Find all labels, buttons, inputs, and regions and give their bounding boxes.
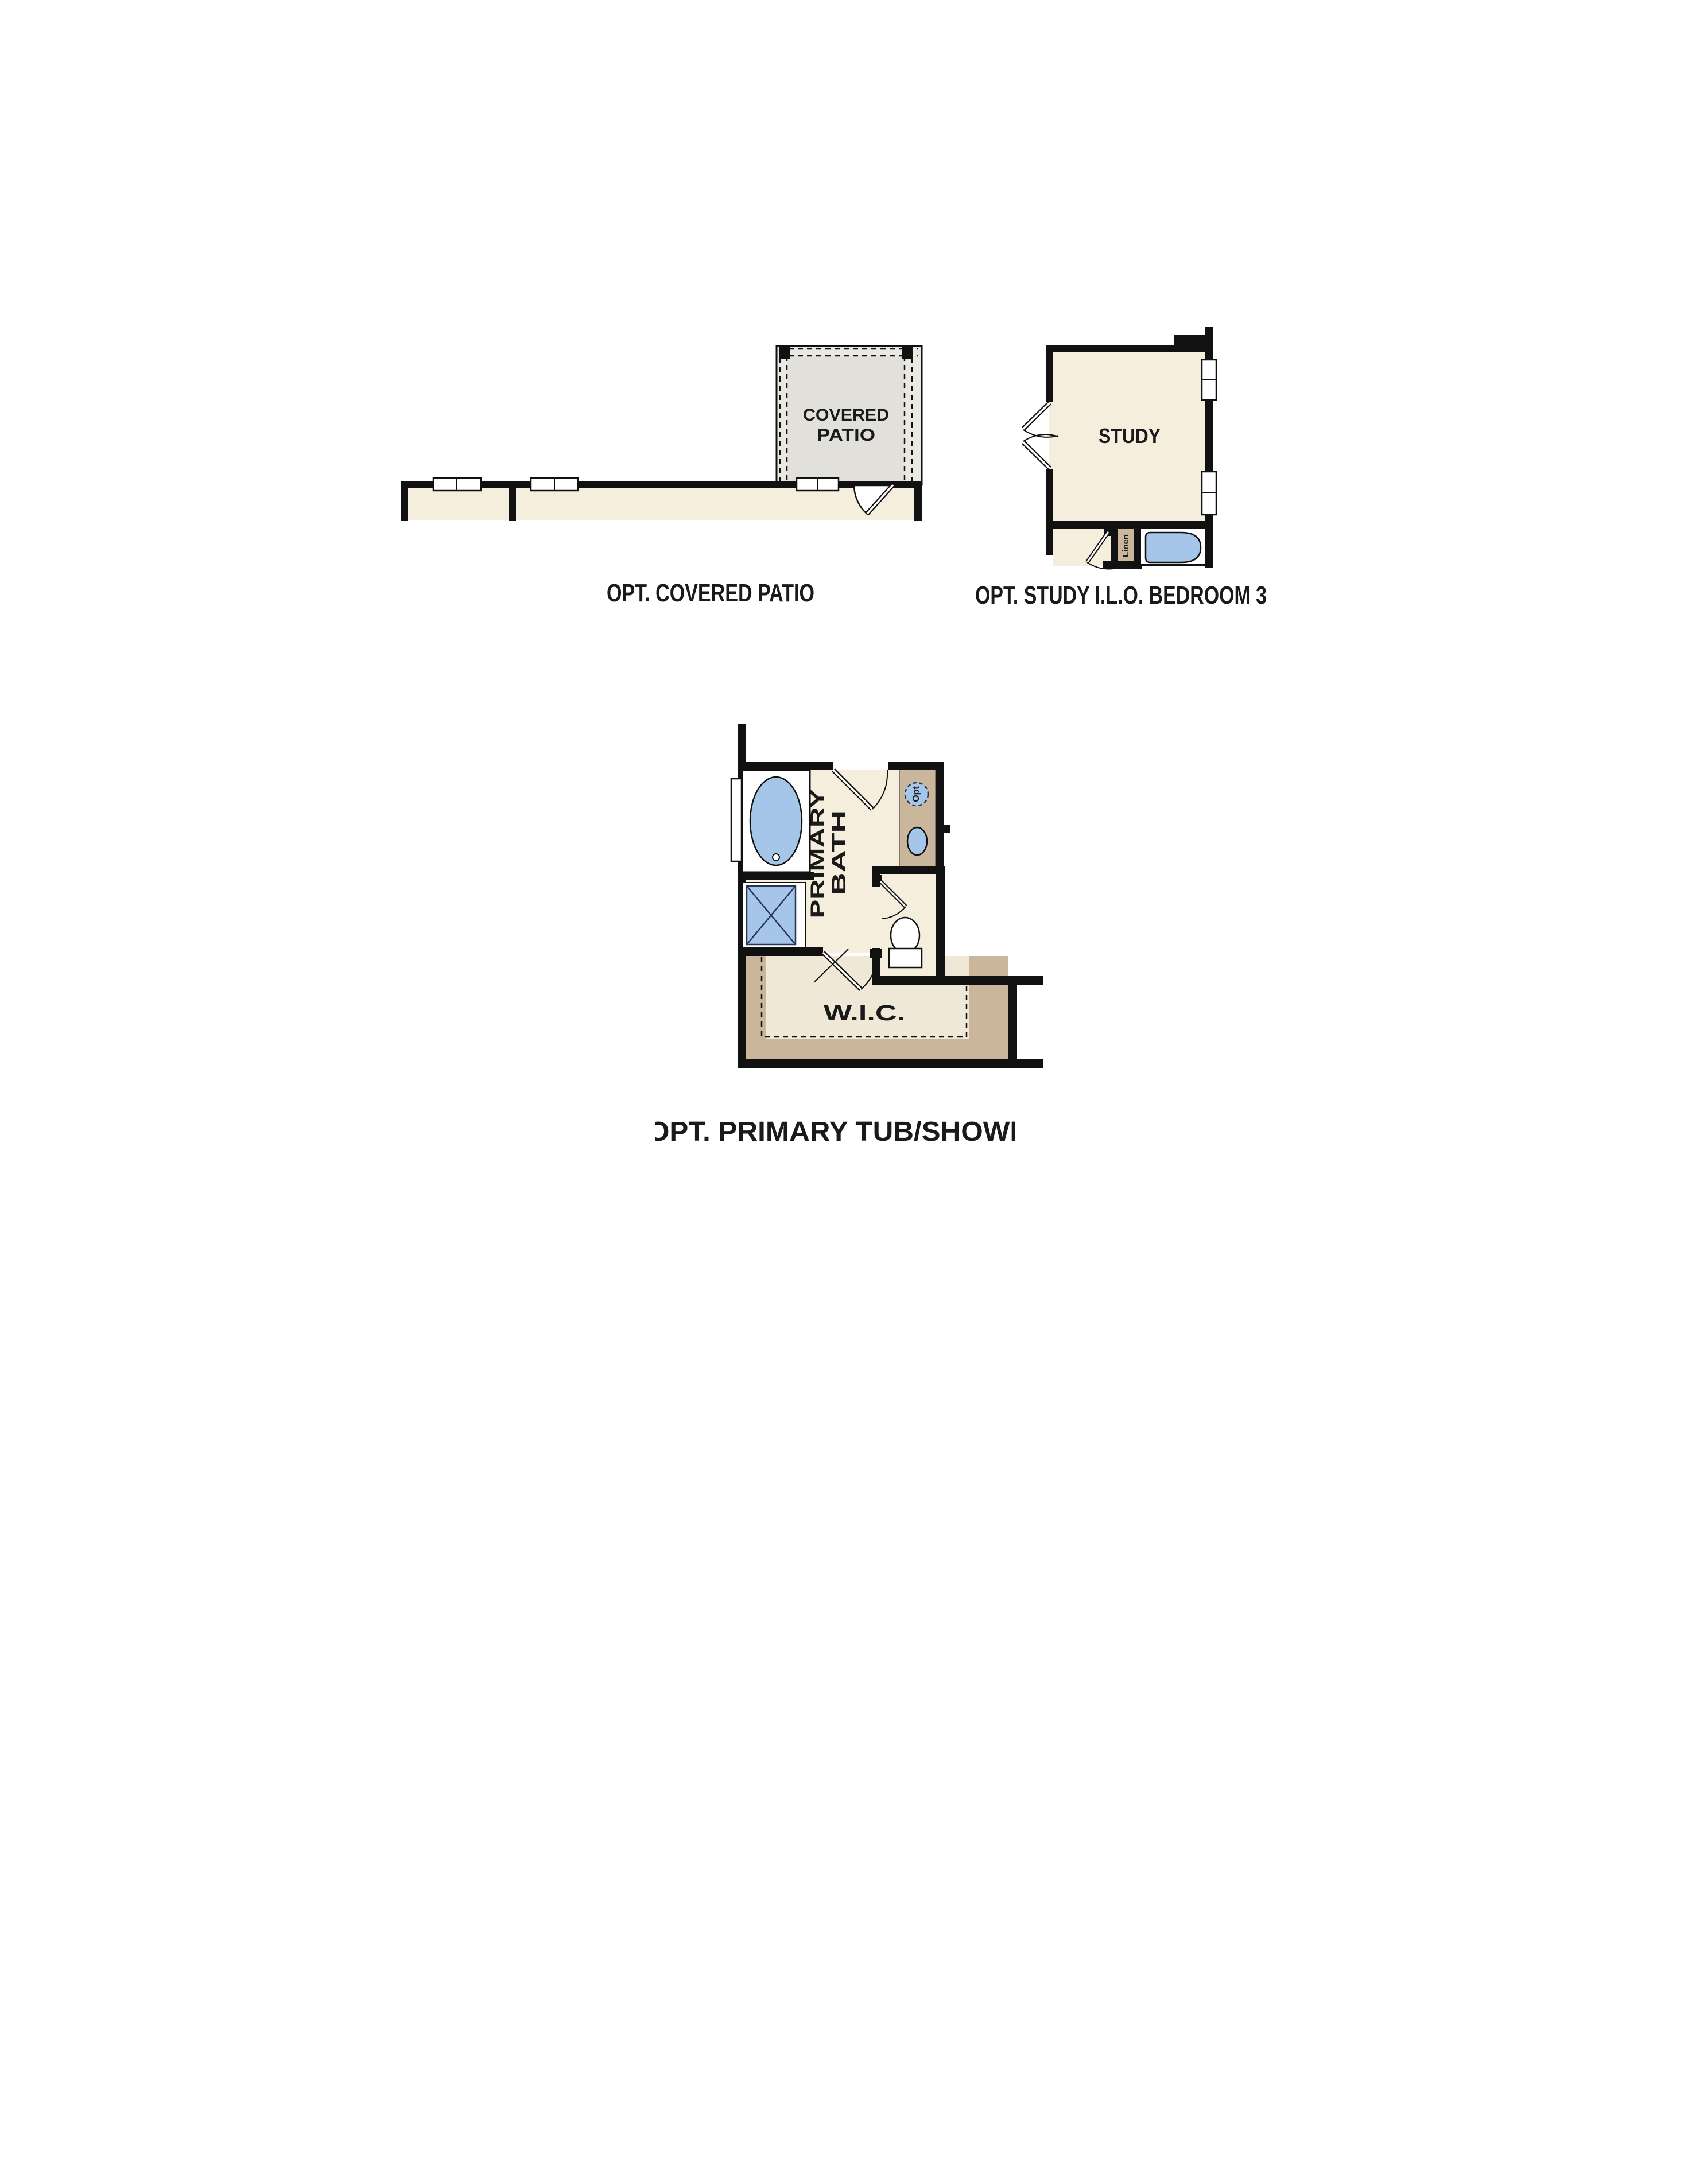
study-left-wall [1046,345,1053,402]
window-icon [531,478,578,491]
vanity-bottom-wall [872,866,944,874]
exterior-wall-stub [401,481,408,521]
caption-study: OPT. STUDY I.L.O. BEDROOM 3 [975,581,1267,609]
toilet-icon [889,918,922,967]
study-top-wall [1046,345,1206,352]
patio-room-label-line2: PATIO [817,426,875,445]
bathtub-icon [1146,533,1201,562]
patio-post-icon [779,347,790,359]
wall-tick [944,825,950,833]
hall-wall-stub [1046,529,1053,555]
top-wall [888,762,944,770]
wic-right-wall [1008,976,1017,1068]
study-left-wall [1046,469,1053,529]
wic-label: W.I.C. [824,1001,905,1025]
caption-primary-tub-shower: OPT. PRIMARY TUB/SHOWER [647,1117,1049,1147]
optional-fixture-label: Opt [911,786,921,802]
window-icon [1202,360,1216,400]
vanity-counter: Opt [899,770,936,868]
interior-wall-stub [509,481,516,521]
bath-bottom-wall [738,947,823,956]
top-wall [738,762,833,770]
patio-room-label-line1: COVERED [803,406,889,425]
primary-bath-diagram: Opt [647,724,1049,1147]
study-bottom-wall [1046,521,1213,529]
sink-icon [907,827,927,855]
wic-bottom-wall [738,1059,1043,1068]
window-icon [731,779,742,861]
floor-plan-sheet: COVERED PATIO OPT. COVERED PATIO [0,0,1688,2184]
shower-icon [742,883,805,947]
floor-plan-drawing: COVERED PATIO OPT. COVERED PATIO [0,0,1688,2184]
window-icon [1202,472,1216,515]
exterior-wall-stub [914,481,922,521]
wic-top-right-wall [872,976,1043,985]
patio-post-icon [902,347,913,359]
linen-label: Linen [1121,534,1131,557]
hall-bottom-wall-stub [1103,561,1142,569]
window-icon [797,478,839,491]
tub-shower-divider-wall [738,872,814,880]
vanity-right-wall [936,762,944,868]
study-room-label: STUDY [1099,424,1161,448]
covered-patio-diagram: COVERED PATIO OPT. COVERED PATIO [401,346,922,607]
optional-fixture-icon: Opt [905,783,928,806]
garden-tub-icon [731,770,810,872]
toilet-room-right-wall [936,866,945,985]
primary-bath-label-line2: BATH [828,810,850,895]
primary-bath-label-line1: PRIMARY [807,789,829,918]
window-icon [433,478,481,491]
study-diagram: STUDY Linen OPT. STUDY I.L.O. BEDROOM 3 [975,327,1267,609]
room-floor [408,488,509,520]
room-floor [516,488,914,520]
alcove-edge-line [1141,564,1205,566]
caption-covered-patio: OPT. COVERED PATIO [607,579,814,607]
